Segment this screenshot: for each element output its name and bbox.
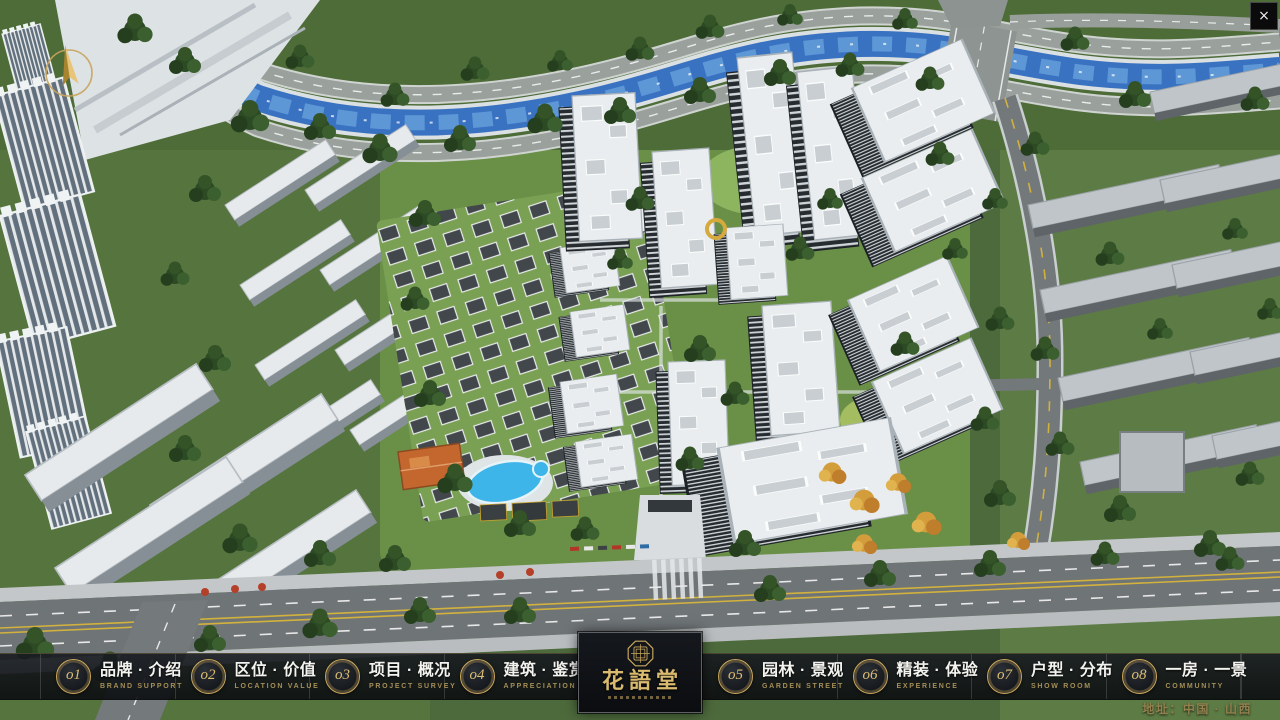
nav-labels: 园林 · 景观 GARDEN STREET	[762, 663, 837, 690]
nav-title: 品牌 · 介绍	[100, 663, 175, 680]
nav-item-one-house-one-view[interactable]: o8 一房 · 一景 COMMUNITY	[1107, 654, 1242, 699]
navbar-left-pad	[0, 654, 41, 699]
nav-badge-06: o6	[853, 659, 888, 694]
nav-number: o5	[728, 667, 743, 684]
nav-labels: 项目 · 概况 PROJECT SURVEY	[369, 663, 444, 690]
nav-labels: 一房 · 一景 COMMUNITY	[1166, 663, 1241, 690]
nav-title: 精装 · 体验	[897, 663, 972, 680]
nav-labels: 品牌 · 介绍 BRAND SUPPORT	[100, 663, 175, 690]
nav-item-location-value[interactable]: o2 区位 · 价值 LOCATION VALUE	[176, 654, 311, 699]
nav-badge-08: o8	[1122, 659, 1157, 694]
nav-labels: 建筑 · 鉴赏 APPRECIATION	[504, 663, 579, 690]
nav-labels: 精装 · 体验 EXPERIENCE	[897, 663, 972, 690]
nav-number: o4	[470, 667, 485, 684]
nav-subtitle: LOCATION VALUE	[235, 683, 310, 690]
nav-number: o6	[863, 667, 878, 684]
nav-subtitle: SHOW ROOM	[1031, 683, 1106, 690]
navbar-right-pad	[1241, 654, 1280, 699]
nav-subtitle: PROJECT SURVEY	[369, 683, 444, 690]
nav-badge-03: o3	[325, 659, 360, 694]
nav-badge-02: o2	[191, 659, 226, 694]
nav-subtitle: APPRECIATION	[504, 683, 579, 690]
nav-title: 区位 · 价值	[235, 663, 310, 680]
nav-labels: 户型 · 分布 SHOW ROOM	[1031, 663, 1106, 690]
main-entrance-plaza	[634, 495, 706, 560]
nav-item-unit-distribution[interactable]: o7 户型 · 分布 SHOW ROOM	[972, 654, 1107, 699]
nav-subtitle: COMMUNITY	[1166, 683, 1241, 690]
nav-subtitle: EXPERIENCE	[897, 683, 972, 690]
nav-number: o8	[1132, 667, 1147, 684]
nav-number: o3	[335, 667, 350, 684]
nav-title: 一房 · 一景	[1166, 663, 1241, 680]
nav-number: o2	[201, 667, 216, 684]
nav-item-architecture-appreciation[interactable]: o4 建筑 · 鉴赏 APPRECIATION	[445, 654, 580, 699]
nav-title: 户型 · 分布	[1031, 663, 1106, 680]
logo-panel[interactable]: 花語堂	[578, 632, 702, 713]
compass-north-indicator	[40, 34, 98, 102]
nav-badge-01: o1	[56, 659, 91, 694]
presentation-window: × o1 品牌 · 介绍 BRAND SUPPORT o2 区位 · 价值 LO…	[0, 0, 1280, 720]
nav-item-garden-landscape[interactable]: o5 园林 · 景观 GARDEN STREET	[703, 654, 838, 699]
aerial-masterplan-rendering	[0, 0, 1280, 720]
nav-title: 建筑 · 鉴赏	[504, 663, 579, 680]
nav-title: 园林 · 景观	[762, 663, 837, 680]
project-address: 地址：中国 · 山西	[1142, 700, 1252, 717]
logo-subtitle-line	[608, 696, 672, 699]
nav-number: o1	[66, 667, 81, 684]
nav-badge-04: o4	[460, 659, 495, 694]
nav-number: o7	[997, 667, 1012, 684]
nav-badge-07: o7	[987, 659, 1022, 694]
nav-item-project-overview[interactable]: o3 项目 · 概况 PROJECT SURVEY	[310, 654, 445, 699]
nav-title: 项目 · 概况	[369, 663, 444, 680]
logo-title: 花語堂	[597, 670, 683, 692]
nav-labels: 区位 · 价值 LOCATION VALUE	[235, 663, 310, 690]
close-button[interactable]: ×	[1250, 2, 1278, 30]
nav-subtitle: BRAND SUPPORT	[100, 683, 175, 690]
nav-subtitle: GARDEN STREET	[762, 683, 837, 690]
nav-item-interior-experience[interactable]: o6 精装 · 体验 EXPERIENCE	[838, 654, 973, 699]
seal-icon	[626, 639, 655, 668]
nav-item-brand-intro[interactable]: o1 品牌 · 介绍 BRAND SUPPORT	[41, 654, 176, 699]
nav-badge-05: o5	[718, 659, 753, 694]
